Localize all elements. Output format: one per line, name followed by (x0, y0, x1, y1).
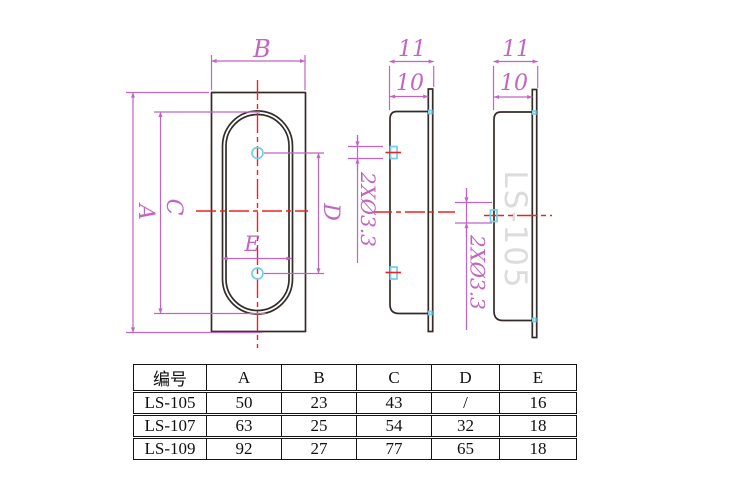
header-D: D (432, 364, 500, 391)
cell-E: 18 (500, 415, 577, 437)
front-view (196, 80, 308, 348)
cell-D: 65 (432, 438, 500, 460)
cell-A: 92 (207, 438, 282, 460)
cell-D: / (432, 392, 500, 414)
dim-label-D: D (318, 202, 343, 221)
dimension-E: E (223, 232, 292, 259)
header-model: 编号 (133, 364, 207, 391)
header-E: E (500, 364, 577, 391)
spec-table: 编号 A B C D E LS-105 50 23 43 / 16 (133, 363, 577, 461)
dim-label-B: B (252, 35, 271, 63)
side-view-middle (372, 89, 455, 332)
cell-C: 54 (357, 415, 432, 437)
table-row: LS-109 92 27 77 65 18 (133, 438, 577, 460)
cell-model: LS-109 (133, 438, 207, 460)
cell-B: 23 (282, 392, 357, 414)
dim-label-10: 10 (500, 71, 528, 96)
table-row: LS-105 50 23 43 / 16 (133, 392, 577, 414)
cell-model: LS-107 (133, 415, 207, 437)
face-flange-profile (532, 90, 536, 338)
dim-label-11: 11 (398, 37, 426, 62)
dim-label-10: 10 (396, 71, 424, 96)
cell-C: 77 (357, 438, 432, 460)
dim-label-C: C (161, 199, 186, 216)
cell-E: 18 (500, 438, 577, 460)
dimension-depth-10-middle: 10 (390, 71, 428, 97)
cell-model: LS-105 (133, 392, 207, 414)
hole-note: 2XØ3.3 (466, 234, 490, 310)
cell-D: 32 (432, 415, 500, 437)
header-C: C (357, 364, 432, 391)
cell-A: 63 (207, 415, 282, 437)
technical-drawing-sheet: B A C D E 11 (0, 0, 750, 500)
cell-A: 50 (207, 392, 282, 414)
spec-table-container: 编号 A B C D E LS-105 50 23 43 / 16 (133, 363, 577, 461)
table-row: LS-107 63 25 54 32 18 (133, 415, 577, 437)
hole-note: 2XØ3.3 (356, 171, 380, 247)
dimension-D: D (264, 153, 343, 274)
header-A: A (207, 364, 282, 391)
side-view-right: LS-105 (484, 90, 552, 338)
hole-callout-right: 2XØ3.3 (455, 188, 492, 330)
face-flange-profile (428, 89, 432, 332)
dimension-C: C (154, 112, 266, 314)
cell-B: 27 (282, 438, 357, 460)
dimension-A: A (126, 93, 262, 333)
cell-C: 43 (357, 392, 432, 414)
cell-B: 25 (282, 415, 357, 437)
dim-label-11: 11 (502, 37, 530, 62)
watermark-model: LS-105 (497, 170, 533, 289)
dimension-B: B (212, 35, 306, 90)
dimension-depth-10-right: 10 (494, 71, 532, 97)
dim-label-E: E (243, 232, 259, 256)
hole-callout-middle: 2XØ3.3 (348, 135, 383, 263)
header-B: B (282, 364, 357, 391)
dim-label-A: A (133, 202, 158, 220)
cell-E: 16 (500, 392, 577, 414)
spec-header-row: 编号 A B C D E (133, 364, 577, 391)
